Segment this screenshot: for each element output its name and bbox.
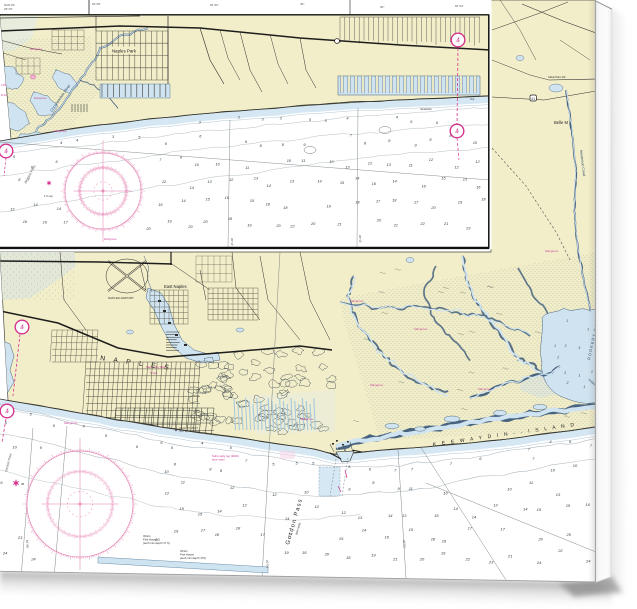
svg-text:Mangrove: Mangrove [545,249,559,253]
svg-text:15: 15 [179,506,184,511]
svg-text:14: 14 [388,513,393,518]
svg-text:4 PA: 4 PA [1,83,7,87]
svg-text:Mangrove: Mangrove [370,383,384,387]
svg-text:30″: 30″ [380,5,384,9]
svg-text:81°46′: 81°46′ [210,3,219,7]
svg-text:22: 22 [557,548,563,553]
svg-text:15: 15 [434,513,439,518]
svg-text:10: 10 [164,469,169,474]
svg-text:Mangrove: Mangrove [104,237,117,241]
svg-text:11: 11 [409,486,413,491]
svg-text:Sabal Palm Rd: Sabal Palm Rd [548,75,566,79]
svg-text:21: 21 [336,222,341,227]
svg-text:24: 24 [2,551,8,556]
svg-text:20: 20 [419,556,425,561]
svg-text:12: 12 [230,485,235,490]
svg-text:Mangrove: Mangrove [350,299,364,303]
svg-text:19: 19 [371,552,376,557]
svg-text:14: 14 [453,506,458,511]
svg-text:14: 14 [285,516,290,521]
svg-text:19: 19 [284,550,289,555]
svg-text:26°52′: 26°52′ [402,540,407,549]
svg-text:Naples Park: Naples Park [112,49,137,54]
svg-text:2: 2 [563,371,566,375]
svg-text:(317 ft): (317 ft) [179,429,187,433]
svg-text:21: 21 [507,554,512,559]
svg-text:17: 17 [201,528,206,533]
svg-text:10: 10 [12,445,17,450]
svg-text:13: 13 [493,503,498,508]
svg-text:Mangrove: Mangrove [300,417,314,421]
svg-text:20: 20 [275,223,281,228]
svg-text:24: 24 [30,557,36,562]
svg-text:11: 11 [301,158,305,163]
svg-text:15: 15 [537,507,542,512]
svg-text:(see note): (see note) [212,458,225,462]
svg-text:38: 38 [21,482,25,486]
svg-text:Mangrove: Mangrove [64,421,78,425]
svg-text:45″: 45″ [300,2,304,6]
svg-text:11: 11 [181,479,185,484]
svg-text:16: 16 [385,535,390,540]
svg-text:41: 41 [531,97,535,101]
svg-text:17: 17 [501,526,506,531]
svg-text:1: 1 [566,319,568,323]
svg-text:14: 14 [472,514,477,519]
svg-text:23: 23 [488,559,494,564]
svg-text:19: 19 [442,539,447,544]
svg-text:15: 15 [409,527,414,532]
svg-text:81°48′: 81°48′ [25,540,30,549]
svg-text:19: 19 [441,550,446,555]
svg-text:11: 11 [409,163,413,168]
svg-text:26°14′: 26°14′ [230,238,234,246]
svg-text:11: 11 [245,165,249,170]
svg-text:12: 12 [272,492,277,497]
svg-text:Mangrove: Mangrove [478,387,492,391]
svg-text:12: 12 [165,491,170,496]
svg-text:22: 22 [420,221,426,226]
svg-text:81°48′: 81°48′ [92,2,101,6]
svg-text:26°50′: 26°50′ [265,560,270,569]
svg-text:3: 3 [578,346,580,350]
svg-text:21: 21 [392,556,397,561]
svg-text:19: 19 [174,528,179,533]
svg-text:20: 20 [324,551,330,556]
svg-text:20: 20 [154,537,160,542]
svg-text:Belle M: Belle M [554,120,568,125]
svg-text:Mangrove: Mangrove [34,96,47,100]
svg-text:18: 18 [302,550,307,555]
svg-text:20: 20 [145,226,151,231]
svg-text:18: 18 [431,537,436,542]
svg-text:Fl 4s: Fl 4s [1,93,7,97]
svg-text:10: 10 [304,490,309,495]
svg-text:20: 20 [537,536,543,541]
svg-text:2: 2 [564,344,567,348]
svg-text:(auth min depth 17ft): (auth min depth 17ft) [180,556,206,560]
svg-text:Vanderbilt: Vanderbilt [420,107,432,111]
svg-text:1: 1 [583,385,585,389]
svg-text:22: 22 [289,224,295,229]
svg-text:East Naples: East Naples [164,284,187,289]
svg-text:26°18′: 26°18′ [4,7,13,11]
svg-text:21: 21 [393,223,398,228]
svg-text:14: 14 [523,506,528,511]
svg-text:15: 15 [339,536,344,541]
svg-text:Mangrove: Mangrove [414,327,428,331]
svg-text:Mangrove: Mangrove [30,47,43,51]
svg-text:14: 14 [362,527,367,532]
svg-text:18: 18 [346,555,351,560]
svg-text:15: 15 [198,512,203,517]
svg-text:10: 10 [507,487,512,492]
svg-text:24: 24 [536,560,542,565]
svg-text:12: 12 [242,503,247,508]
svg-text:12: 12 [315,504,320,509]
svg-text:10: 10 [573,463,578,468]
svg-text:81°44′: 81°44′ [455,4,464,8]
svg-text:2: 2 [556,356,559,360]
svg-text:22: 22 [465,557,471,562]
svg-text:10: 10 [443,491,448,496]
svg-text:17: 17 [260,532,265,537]
svg-text:18: 18 [236,526,241,531]
svg-text:1: 1 [579,374,581,378]
svg-text:20: 20 [310,221,316,226]
svg-text:2: 2 [566,381,569,385]
svg-text:20: 20 [376,217,382,222]
svg-text:Mangrove: Mangrove [54,129,67,133]
svg-text:1: 1 [554,344,556,348]
svg-text:15: 15 [566,503,571,508]
svg-text:1 ft rep: 1 ft rep [44,194,53,198]
svg-text:13: 13 [358,515,363,520]
svg-text:14: 14 [217,508,222,513]
svg-text:NAPLES AIRPORT: NAPLES AIRPORT [108,296,134,300]
svg-text:21: 21 [443,221,448,226]
svg-text:11: 11 [529,480,533,485]
svg-text:10: 10 [551,467,556,472]
svg-text:20: 20 [187,224,193,229]
svg-text:26°15′: 26°15′ [358,235,362,243]
svg-text:Out: Out [470,97,474,101]
svg-text:17: 17 [468,526,473,531]
svg-text:23: 23 [17,535,23,540]
svg-text:18: 18 [215,532,220,537]
svg-text:13: 13 [402,513,407,518]
svg-text:20: 20 [202,219,208,224]
svg-text:23: 23 [465,225,471,230]
svg-text:13: 13 [556,492,561,497]
svg-text:20: 20 [566,532,572,537]
svg-text:12: 12 [341,510,346,515]
svg-text:20: 20 [430,205,436,210]
